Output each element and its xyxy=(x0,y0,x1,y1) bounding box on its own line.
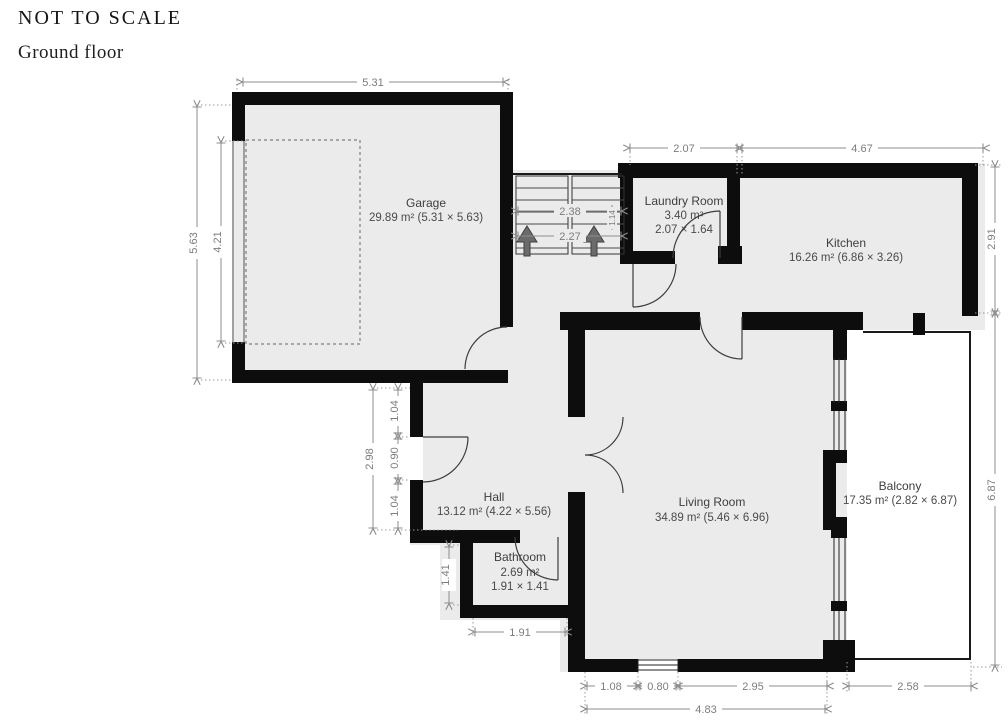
garage-door-nub-top xyxy=(232,136,245,141)
floor-plan-page: NOT TO SCALE Ground floor xyxy=(0,0,1008,720)
balcony-label: Balcony xyxy=(879,479,922,493)
kitchen-wall-right xyxy=(962,163,978,316)
bathroom-wall-left xyxy=(460,530,473,618)
dim-garage-inner-depth: 4.21 xyxy=(212,231,224,252)
dim-living-bottom-right: 2.95 xyxy=(742,681,763,693)
living-wall-corner-se xyxy=(823,640,855,672)
dim-living-window: 0.80 xyxy=(647,681,668,693)
dim-front-door-width: 0.90 xyxy=(389,447,401,468)
dim-balcony-depth: 6.87 xyxy=(986,479,998,500)
laundry-size: 2.07 × 1.64 xyxy=(655,224,713,236)
room-fill-hall xyxy=(410,370,585,545)
double-door-nub-top xyxy=(568,412,585,417)
dim-bathroom-depth: 1.41 xyxy=(440,564,452,585)
bathroom-size: 1.91 × 1.41 xyxy=(491,581,549,593)
dim-kitchen-width: 4.67 xyxy=(851,143,872,155)
room-fill-living-room xyxy=(560,312,847,672)
dim-living-bottom-total: 4.83 xyxy=(695,704,716,716)
bathroom-wall-bottom xyxy=(460,605,585,618)
garage-wall-bottom xyxy=(232,370,508,383)
room-fill-garage xyxy=(232,92,513,383)
dim-balcony-width: 2.58 xyxy=(897,681,918,693)
laundry-wall-corner xyxy=(718,246,742,264)
living-wall-right-pier2 xyxy=(831,528,847,538)
dim-stairs-width: 1.14 xyxy=(608,210,617,226)
garage-details: 29.89 m² (5.31 × 5.63) xyxy=(369,212,483,224)
living-wall-right-pier3 xyxy=(831,601,847,611)
hall-wall-left-upper xyxy=(410,383,423,437)
dim-garage-depth: 5.63 xyxy=(188,232,200,253)
living-wall-bottom-west xyxy=(568,659,638,672)
laundry-wall-bottom xyxy=(620,251,675,264)
front-door-nub-top xyxy=(410,432,423,437)
double-door-nub-bottom xyxy=(568,492,585,497)
dim-bathroom-width: 1.91 xyxy=(509,627,530,639)
kitchen-details: 16.26 m² (6.86 × 3.26) xyxy=(789,252,903,264)
hall-details: 13.12 m² (4.22 × 5.56) xyxy=(437,506,551,518)
scale-note: NOT TO SCALE xyxy=(18,7,182,29)
kitchen-wall-top xyxy=(618,163,978,178)
dim-hall-left-total: 2.98 xyxy=(364,448,376,469)
dim-stairs-upper: 2.38 xyxy=(559,206,580,218)
dim-hall-left-lower: 1.04 xyxy=(389,495,401,516)
hall-wall-left-lower xyxy=(410,480,423,532)
laundry-wall-left xyxy=(620,176,633,264)
garage-label: Garage xyxy=(406,196,446,210)
dim-laundry-width: 2.07 xyxy=(673,143,694,155)
living-room-label: Living Room xyxy=(679,495,746,509)
floor-plan-svg: NOT TO SCALE Ground floor xyxy=(0,0,1008,720)
living-wall-right-stub-top xyxy=(833,330,847,360)
kitchen-label: Kitchen xyxy=(826,236,866,250)
dim-garage-width: 5.31 xyxy=(362,77,383,89)
living-wall-left-lower xyxy=(568,493,585,672)
living-room-details: 34.89 m² (5.46 × 6.96) xyxy=(655,512,769,524)
hall-label: Hall xyxy=(484,490,505,504)
dim-hall-left-upper: 1.04 xyxy=(389,400,401,421)
garage-wall-top xyxy=(232,92,513,105)
garage-wall-right xyxy=(500,92,513,327)
living-wall-left-upper xyxy=(568,312,585,417)
dim-living-bottom-left: 1.08 xyxy=(600,681,621,693)
floor-label: Ground floor xyxy=(18,42,124,63)
front-door-opening xyxy=(410,437,423,480)
garage-wall-left-upper xyxy=(232,92,245,140)
dim-stairs-lower: 2.27 xyxy=(559,231,580,243)
laundry-label: Laundry Room xyxy=(645,194,724,208)
living-window-south xyxy=(638,659,678,672)
living-wall-bottom-east xyxy=(678,659,827,672)
balcony-wall-stub xyxy=(913,313,925,335)
living-wall-top-east xyxy=(742,312,863,330)
room-fill-kitchen-laundry xyxy=(618,163,985,330)
balcony-details: 17.35 m² (2.82 × 6.87) xyxy=(843,495,957,507)
dim-kitchen-depth: 2.91 xyxy=(986,228,998,249)
laundry-wall-right xyxy=(727,176,740,251)
